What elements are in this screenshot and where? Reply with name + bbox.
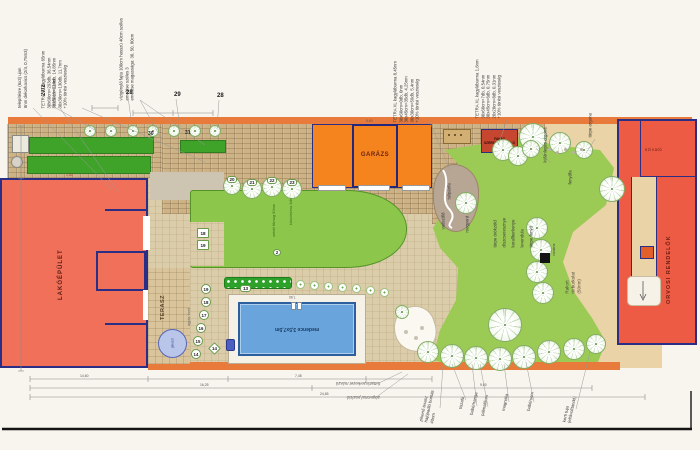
tree: [526, 261, 548, 283]
marker-21: 21: [247, 179, 257, 186]
marker-16: 16: [196, 323, 206, 333]
gravel-dot: [564, 148, 567, 151]
note-tetra1: TETRA XL kagylóburma 65nm 30x60cm=293db,…: [41, 14, 69, 109]
plant-vadszolo: vadszőlő: [441, 204, 447, 230]
garage-label: GARÁZS: [352, 152, 398, 158]
flower: [366, 286, 375, 295]
bottom-plant-5: babérsom: [526, 379, 538, 411]
plant-cluster-2: díszcseresznye: [502, 208, 508, 248]
note-dwarf-lilac: törpe orgona: [588, 94, 594, 138]
note-tetra3: TETRA XL kagylóburma 1,6nm 30x60cm=7db, …: [475, 59, 503, 119]
pool: medence 3,5x7,5m: [238, 302, 356, 356]
flower: [296, 280, 305, 289]
marker-22: 22: [267, 177, 277, 184]
marker-23: 23: [287, 179, 297, 186]
tree: [522, 140, 540, 158]
tree: [537, 340, 561, 364]
gravel-dot: [580, 148, 583, 151]
bench-dot-2: [454, 134, 456, 136]
marker-sq-18: 18: [197, 228, 209, 238]
marker-17: 17: [199, 310, 209, 320]
tree: [563, 338, 585, 360]
bush: [168, 125, 180, 137]
bed-front-label: ágyás front: [187, 300, 191, 334]
water-shaft-label: vízakna: [552, 238, 556, 262]
flower: [352, 284, 361, 293]
bench-dot-1: [448, 134, 450, 136]
jacuzzi-label: jakuzzi: [159, 330, 186, 357]
bottom-plant-4: magnólia: [501, 381, 512, 411]
house-wall-2: [105, 323, 146, 325]
tree: [586, 334, 606, 354]
flower: [338, 283, 347, 292]
gravel-dot: [548, 148, 551, 151]
clinic-small-box: [640, 246, 654, 259]
marker-28b: 28: [217, 93, 224, 99]
plant-tulipanfa: tulipánfa: [447, 174, 453, 200]
bottom-plant-6: kerti tuja (eltávolítandó): [562, 376, 582, 423]
dim-2: 7,45: [295, 374, 302, 378]
house-label: LAKÓÉPÜLET: [58, 238, 64, 312]
clinic-label: ORVOSI RENDELŐK: [666, 222, 672, 318]
pool-dim: 7,50: [289, 295, 296, 299]
tree: [488, 347, 512, 371]
bush: [105, 125, 117, 137]
garden-site-plan: LAKÓÉPÜLET 1,50 GARÁZS 5,60 FAHÁZ SZERSZ…: [0, 0, 700, 450]
house-wall-1: [105, 209, 146, 211]
plant-cluster-3: korallberkenye: [511, 208, 517, 248]
marker-14-diamond: 14: [210, 344, 219, 353]
note-special-lilac: különleges orgona: [543, 105, 549, 163]
hedge-row: [224, 277, 292, 289]
tree: [464, 346, 488, 370]
pool-ladder: [291, 302, 296, 310]
gravel-dot: [572, 151, 575, 154]
central-lawn-label: vetett fűmag 90nm: [271, 200, 276, 240]
planting-strip-c: [180, 140, 226, 153]
flower: [380, 288, 389, 297]
marker-15: 15: [193, 336, 203, 346]
tree: [512, 345, 536, 369]
tree: [599, 176, 625, 202]
terrace-label: TERASZ: [160, 286, 166, 330]
paved-right-label: Rakott térburkolat (50nm): [564, 252, 582, 294]
planting-strip-b: [27, 156, 151, 174]
marker-sq-19: 19: [197, 240, 209, 250]
plant-cluster-1: törpe örökzöld: [493, 208, 499, 248]
note-tetra2: TETRA XL kagylóburma 8,45nm 30x60cm=0db,…: [393, 55, 421, 123]
tree: [488, 308, 522, 342]
garage-door-2: [358, 185, 390, 191]
bottom-plant-0: pihenő terasz hajópadló bontás 40nm: [418, 380, 442, 424]
garage-door-1: [318, 185, 346, 191]
marker-31: 31: [185, 130, 191, 136]
plant-cluster-4: levendula: [520, 208, 526, 248]
note-gravel: telepítésre (6x3) ujan 8nm dekorkavics (…: [17, 28, 28, 108]
house-window-1: [143, 216, 150, 250]
marker-2: 2: [273, 249, 281, 256]
utility-well: [11, 156, 23, 168]
dim-4: 9,80: [480, 383, 487, 387]
clinic-entrance: [627, 276, 661, 306]
bush: [209, 125, 221, 137]
bench-dot-3: [460, 134, 462, 136]
pool-ladder-2: [297, 302, 302, 310]
bush: [84, 125, 96, 137]
note-crawler1: futtatószerkezet mászó: [316, 381, 380, 386]
plant-cluster-5: törpe fenyő: [529, 208, 535, 248]
tree: [575, 141, 593, 159]
bottom-plant-1: tiszafa: [458, 383, 469, 410]
pond-stone-2: [414, 336, 418, 340]
clinic: [617, 119, 697, 345]
marker-18: 18: [201, 297, 211, 307]
marker-14: 14: [191, 349, 201, 359]
climbing-rose-label: kúszórózsa 3db: [289, 196, 293, 228]
pine-label: fenyőfa: [568, 161, 574, 185]
marker-19: 19: [201, 284, 211, 294]
diamond-number: 14: [210, 344, 219, 353]
plant-mogyoro: mogyoró: [465, 207, 471, 233]
tree: [549, 132, 571, 154]
marker-20: 20: [227, 176, 237, 183]
planting-strip-a: [29, 137, 154, 154]
dim-1: 14,60: [80, 374, 89, 378]
jacuzzi: jakuzzi: [158, 329, 187, 358]
shower-box: [226, 339, 235, 351]
garage-dim: 5,60: [366, 119, 373, 123]
house-dim: 1,50: [66, 173, 73, 177]
dim-5: 24,65: [320, 392, 329, 396]
flower: [310, 281, 319, 290]
tree: [532, 282, 554, 304]
marker-30: 30: [148, 131, 154, 137]
marker-13: 13: [240, 285, 251, 292]
dim-3: 16,25: [200, 383, 209, 387]
tree: [440, 344, 464, 368]
bush: [127, 125, 139, 137]
garage-door-3: [402, 185, 430, 191]
clinic-divider-v: [640, 119, 641, 177]
house-bay: [96, 251, 146, 291]
clinic-top-label: szivató: [645, 147, 662, 152]
bench: [443, 129, 471, 144]
flower: [324, 282, 333, 291]
utility-box: [12, 135, 29, 153]
pond-stone-1: [404, 330, 408, 334]
bush: [395, 305, 409, 319]
pool-label: medence 3,5x7,5m: [275, 326, 319, 332]
note-planting: vízigénylő fajta 100cm hosszú 40cm széle…: [119, 13, 136, 101]
water-shaft: [540, 253, 550, 263]
gravel-dot: [556, 151, 559, 154]
marker-29: 29: [174, 92, 181, 98]
pond-stone-3: [420, 326, 424, 330]
tree: [417, 341, 439, 363]
